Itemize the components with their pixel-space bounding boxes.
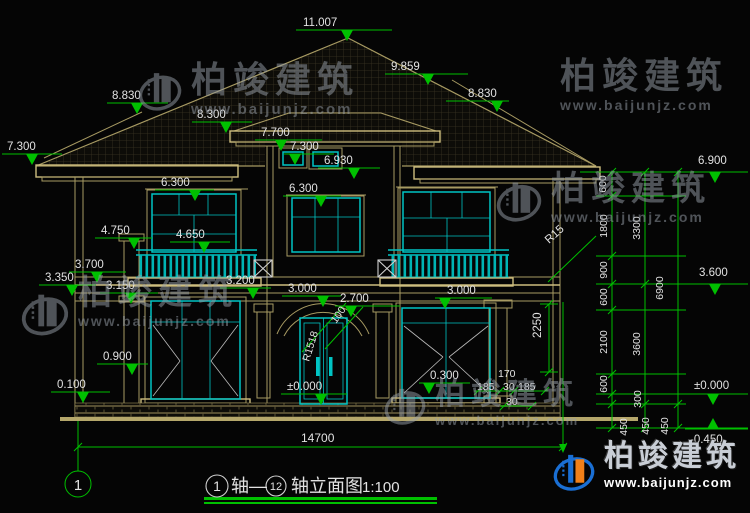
elevation-marker-triangle [77,392,89,403]
elevation-marker-triangle [128,238,140,249]
left-eave-band [36,165,238,177]
dim-label: ±0.000 [694,380,729,392]
dim-label: 100 [329,304,349,325]
ground-line [60,417,638,421]
dim-label: 6.900 [698,155,727,167]
dim-label: 0.900 [103,351,132,363]
elevation-marker-triangle [189,190,201,201]
dim-label: 450 [640,417,652,435]
right-wall-edge [553,181,560,417]
dim-label: 2100 [598,330,610,354]
door-handle-right [329,357,333,376]
dim-label: 185 [477,381,495,393]
door-pilaster-right-shaft [376,312,389,398]
dim-label: 3.000 [288,283,317,295]
brand-logo-icon [552,442,596,500]
dim-label: 900 [598,261,610,279]
dim-label: 3.150 [106,280,135,292]
dim-label: 8.830 [112,90,141,102]
window-left-1f-mullions [151,301,240,399]
dim-label: 600 [598,375,610,393]
scupper-box-left-x [254,260,272,277]
dim-chain-verticals [612,172,678,428]
dim-label: 9.859 [391,61,420,73]
brand-url: www.baijunjz.com [604,476,740,489]
balcony-left [136,250,257,277]
dim-label: 170 [498,368,516,380]
title-text: 轴— [231,476,267,496]
dim-label: 1800 [598,214,610,238]
elevation-marker-triangle [709,284,721,295]
title-axis-end: 12 [270,481,282,493]
dim-label: 3.200 [226,275,255,287]
dim-label: 0.100 [57,379,86,391]
dim-label: R15 [543,223,567,246]
dim-label: 450 [618,418,630,436]
title-axis-start: 1 [213,478,221,494]
window-left-1f-casement-marks [153,325,238,396]
dim-label: 3300 [631,216,643,240]
dim-label: 7.300 [290,141,319,153]
dim-label: ±0.000 [287,381,322,393]
window-right-2f-trim [398,188,495,255]
window-left-1f [151,301,240,399]
balcony-right-balusters [389,255,508,277]
dim-label: 4.750 [101,225,130,237]
dim-label: 14700 [301,431,335,445]
brand-logo: 柏竣建筑 www.baijunjz.com [552,442,740,500]
door-pilaster-left-cap [254,304,273,312]
title-underline-2 [204,502,437,504]
elevation-marker-triangle [66,285,78,296]
title-scale: 1:100 [362,479,400,496]
axis-bubble-number: 1 [74,477,82,494]
door-pilaster-left-shaft [257,312,270,398]
plinth-brick-band [75,403,560,417]
dim-label: 6900 [654,276,666,300]
elevation-marker-triangle [348,168,360,179]
dim-label: 4.650 [176,229,205,241]
dim-label: 8.830 [468,88,497,100]
elevation-marker-triangle [126,364,138,375]
dim-label: 11.007 [303,17,337,29]
balcony-left-balusters [137,255,256,277]
window-left-2f-mullions [152,194,236,252]
door-arch-inner [284,312,362,336]
window-right-2f-mullions [403,192,490,252]
dim-label: 3.350 [45,272,74,284]
dim-label: 3.000 [447,285,476,297]
elevation-marker-triangle [423,383,435,394]
dim-label: 3.600 [699,267,728,279]
elevation-marker-triangle [315,196,327,207]
roof-group [36,38,600,183]
dim-label: 450 [659,417,671,435]
door-handle-left [316,357,320,376]
balcony-right [388,250,509,277]
title-underline-1 [204,497,437,500]
dim-label: 6.300 [289,183,318,195]
dim-label: 600 [597,175,609,193]
elevation-marker-triangle [709,172,721,183]
dim-label: 8.300 [197,109,226,121]
right-pilaster [489,308,507,415]
dim-label: 30 [506,396,518,408]
cad-blueprint-page: 11.0079.8598.8308.8308.3007.7007.3007.30… [0,0,750,513]
dim-label: 2.700 [340,293,369,305]
elevation-marker-triangle [491,101,503,112]
window-right-2f [403,192,490,252]
elevation-marker-triangle [707,418,719,429]
dim-label: 600 [598,288,610,306]
dim-label: 7.300 [7,141,36,153]
title-name: 轴立面图 [291,476,363,496]
right-eave-band [414,167,600,179]
elevation-marker-triangle [707,394,719,405]
left-pilaster [124,241,139,417]
door-pilaster-right-cap [373,304,392,312]
dim-label: 3.700 [75,259,104,271]
dim-label: 6.300 [161,177,190,189]
dim-label: 7.700 [261,127,290,139]
dim-label: 3600 [631,332,643,356]
elevation-drawing: 11.0079.8598.8308.8308.3007.7007.3007.30… [0,0,750,513]
dim-label: 185 [518,381,536,393]
dim-label: 6.930 [324,155,353,167]
dim-label: 300 [632,390,644,408]
dim-label: 2250 [532,312,544,338]
dim-label: 30 [503,381,515,393]
window-center-2f-trim [287,196,364,256]
dim-label: 0.300 [430,370,459,382]
window-center-2f-mullions [292,198,360,252]
scupper-boxes [254,260,396,277]
window-center-2f [292,198,360,252]
brand-name: 柏竣建筑 [604,442,740,472]
elevation-marker-triangle [26,154,38,165]
r15-leader [548,236,596,282]
walls-group [60,146,638,421]
